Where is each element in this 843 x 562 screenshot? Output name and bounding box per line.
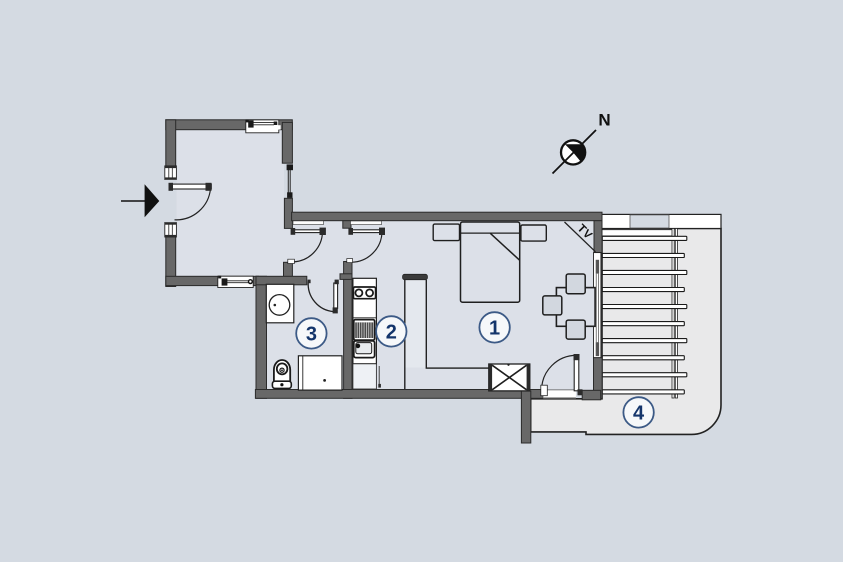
svg-text:N: N bbox=[598, 110, 610, 129]
svg-text:4: 4 bbox=[633, 403, 645, 425]
svg-text:3: 3 bbox=[306, 324, 317, 346]
svg-text:1: 1 bbox=[489, 318, 500, 340]
svg-text:2: 2 bbox=[386, 322, 397, 344]
